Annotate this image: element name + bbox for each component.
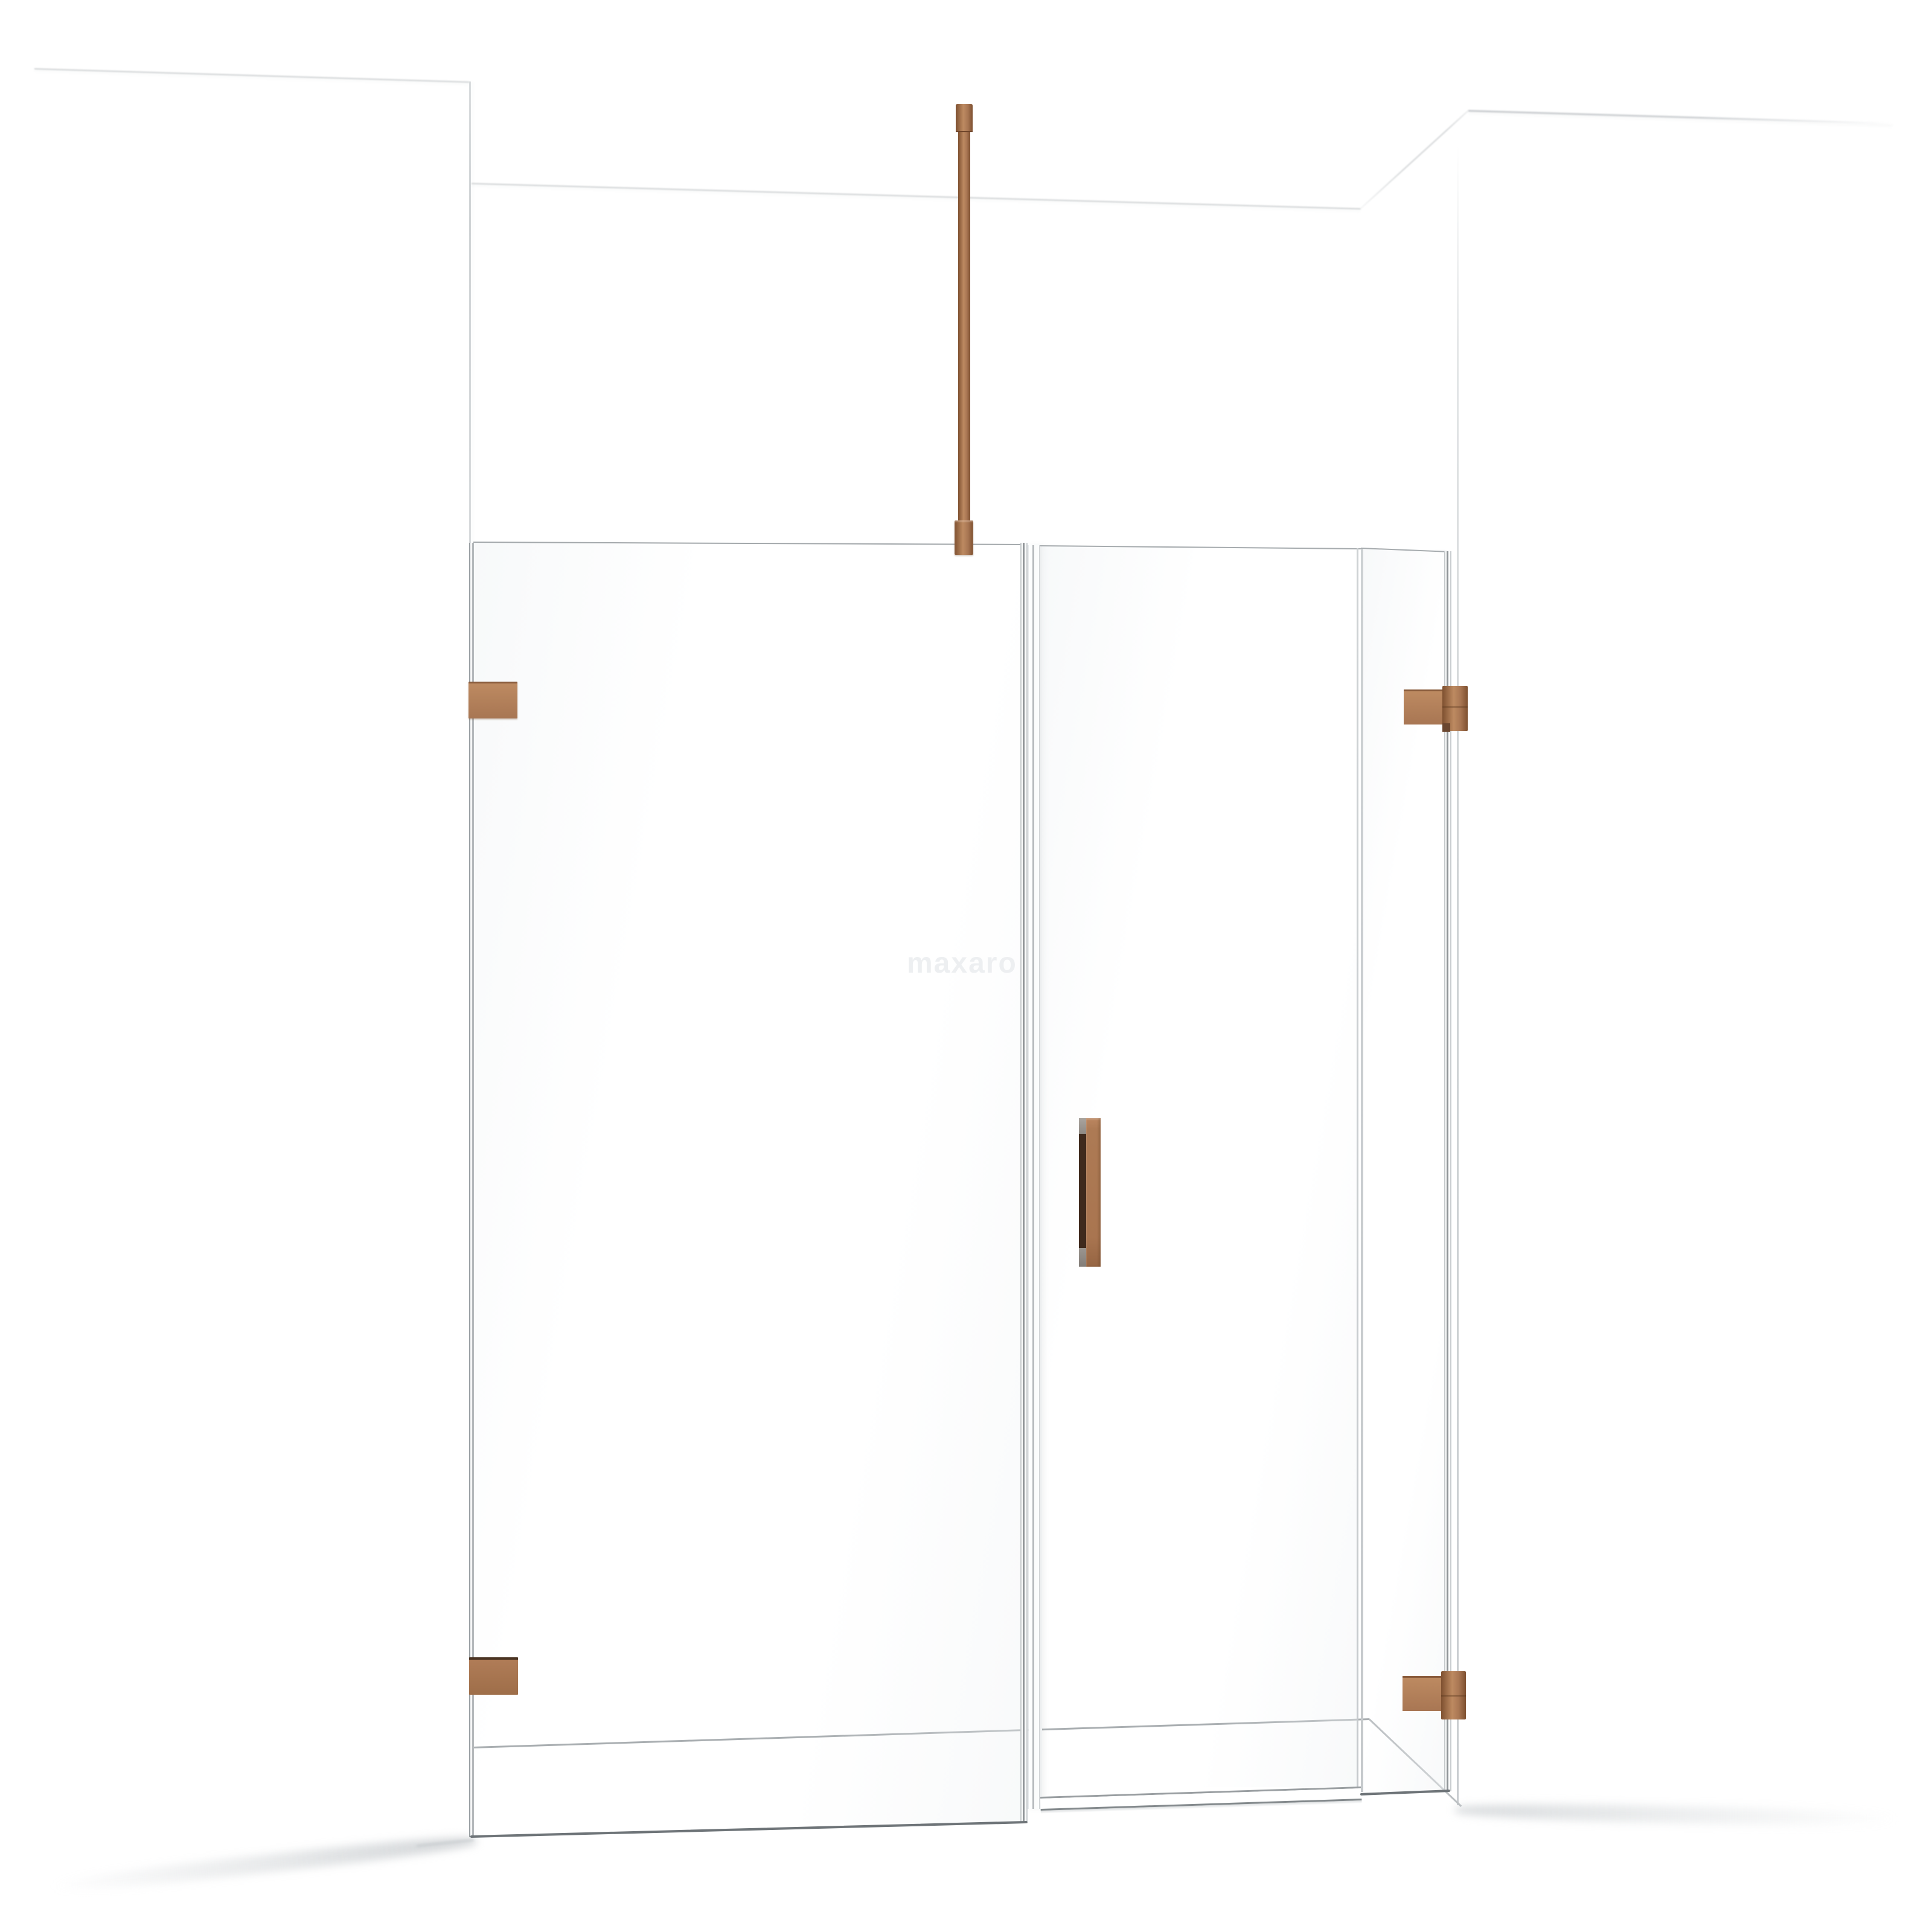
wall-bracket-top-right-notch (1442, 723, 1450, 732)
ceiling-bar-glass-clamp (955, 520, 973, 555)
wall-bracket-bottom-right-seam (1441, 1695, 1466, 1697)
right-glass-left-edge (1361, 548, 1363, 1792)
left-glass-left-edge (469, 543, 474, 1837)
right-wall-front-edge (1457, 145, 1459, 1805)
wall-bracket-top-right (1404, 686, 1468, 732)
left-glass-right-edge (1020, 543, 1028, 1823)
right-floor-shadow (1455, 1802, 1899, 1828)
right-glass-panel (1363, 549, 1445, 1791)
door-handle-slot (1079, 1134, 1086, 1248)
door-right-edge (1357, 548, 1358, 1793)
right-glass-right-edge (1444, 551, 1451, 1791)
wall-bracket-top-left (469, 682, 517, 718)
left-glass-panel (473, 543, 1022, 1823)
wall-bracket-bottom-left (469, 1657, 518, 1695)
wall-bracket-top-right-arm (1404, 689, 1444, 724)
door-bottom-frame (1040, 1786, 1362, 1814)
right-wall-top-edge (1468, 110, 1893, 124)
ceiling-bar-cap (956, 104, 973, 132)
wall-bracket-bottom-right-arm (1403, 1676, 1442, 1711)
door-handle-grip (1086, 1118, 1101, 1267)
wall-bracket-top-right-seam (1442, 706, 1468, 708)
right-wall-corner-edge (1360, 110, 1468, 209)
door-hinge-frame-profile (1028, 545, 1042, 1809)
back-wall-ceiling-line (472, 183, 1360, 210)
left-wall-inner-edge (469, 82, 471, 546)
ceiling-bar-rod (958, 132, 970, 522)
left-glass-bottom-edge (470, 1821, 1028, 1838)
shower-product-render: maxaro (0, 0, 1932, 1932)
left-wall-top-edge (34, 68, 470, 83)
wall-bracket-bottom-right (1403, 1671, 1466, 1719)
left-wall-bottom-shadow (50, 1832, 477, 1896)
door-handle (1079, 1118, 1101, 1267)
